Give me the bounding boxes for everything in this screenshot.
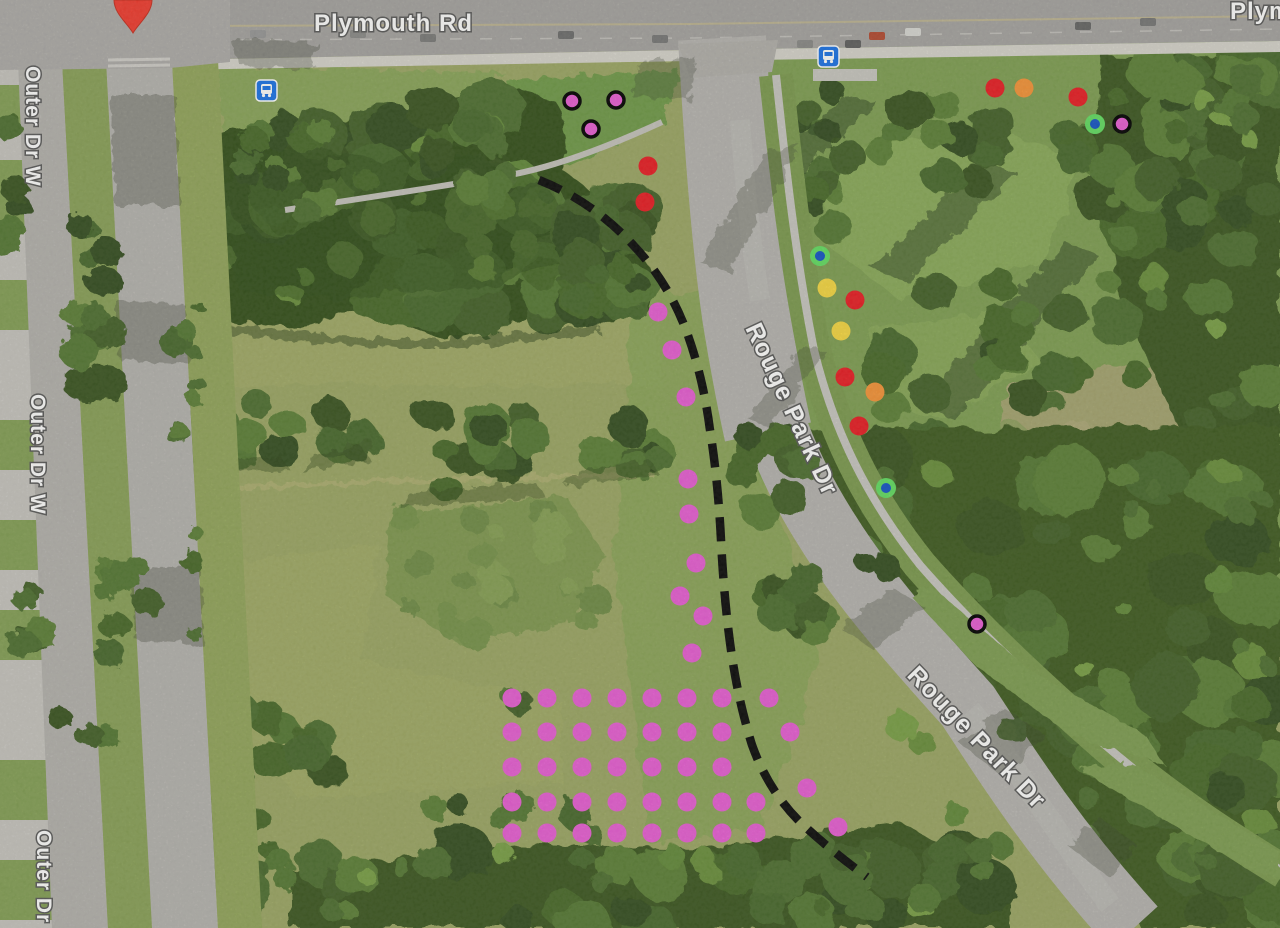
svg-text:Plym: Plym bbox=[1230, 0, 1280, 25]
svg-text:Plymouth Rd: Plymouth Rd bbox=[314, 10, 473, 37]
